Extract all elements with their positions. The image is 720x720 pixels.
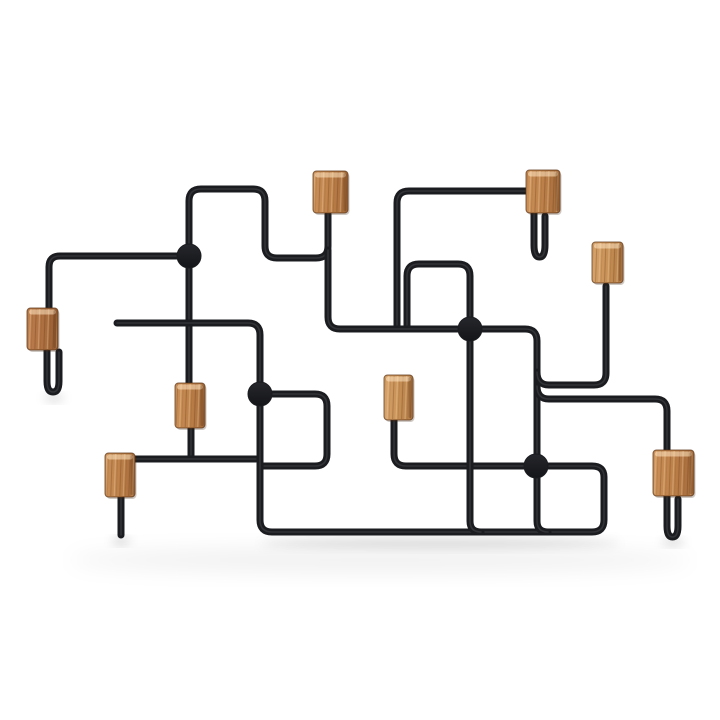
shadow-layer — [44, 395, 690, 572]
wood-block-center-top-highlight — [386, 377, 411, 382]
wood-block-center-grain — [385, 376, 412, 419]
wire-dotD-left-to-center-block-sheen — [394, 419, 536, 466]
wood-block-right-lower — [653, 450, 696, 498]
wood-block-left — [27, 308, 60, 352]
wood-block-right-upper-grain — [593, 243, 622, 282]
wood-block-mid-left-grain — [176, 384, 204, 427]
wood-block-right-lower-top-highlight — [655, 452, 692, 457]
wire-dotD-left-to-center-block — [394, 419, 536, 466]
product-photo-stage — [0, 0, 720, 720]
wire-tall-rect-to-topcenter-block — [397, 191, 528, 326]
wood-block-mid-left — [175, 383, 207, 430]
weld-dot-A — [177, 244, 201, 268]
wire-branch-up-to-rightupper-block-sheen — [537, 286, 606, 385]
wood-block-top-center — [526, 170, 562, 215]
wood-block-top-center-side-shade — [556, 172, 559, 211]
wood-block-mid-left-side-shade — [201, 385, 204, 426]
wire-branch-to-rightlower-block — [537, 386, 667, 453]
wire-dotB-down-corner — [470, 333, 481, 532]
wire-tall-rect-to-topcenter-block-sheen — [397, 191, 528, 326]
wood-block-top-left-top-highlight — [315, 173, 346, 178]
wood-block-right-lower-side-shade — [690, 452, 693, 494]
wood-block-top-center-top-highlight — [528, 172, 558, 177]
wood-block-right-upper-top-highlight — [594, 244, 621, 249]
wood-block-lower-left-side-shade — [131, 455, 134, 495]
wood-block-lower-left-top-highlight — [107, 455, 133, 460]
wood-peg-layer — [27, 170, 696, 499]
wood-block-top-left — [313, 171, 350, 215]
wood-block-top-center-grain — [527, 171, 559, 212]
wood-block-mid-left-top-highlight — [177, 385, 203, 390]
wood-block-right-upper-side-shade — [619, 244, 622, 281]
weld-dot-D — [524, 454, 548, 478]
wood-block-right-lower-grain — [654, 451, 693, 495]
weld-dot-layer — [177, 244, 548, 478]
wood-block-right-upper — [592, 242, 625, 285]
wire-branch-up-to-rightupper-block — [537, 286, 606, 385]
wood-block-left-top-highlight — [29, 310, 56, 315]
wood-block-top-left-side-shade — [344, 173, 347, 211]
wood-block-center — [384, 375, 415, 422]
wood-block-left-side-shade — [54, 310, 57, 348]
peg-spike-tip-shadow — [112, 538, 130, 544]
wood-block-lower-left-grain — [106, 454, 134, 496]
left-hook-tip-shadow — [44, 395, 64, 401]
wire-dotB-right-down-to-dotD — [474, 329, 537, 459]
wood-block-top-left-grain — [314, 172, 347, 212]
floor-haze — [70, 548, 690, 572]
wire-dotB-right-down-to-dotD-sheen — [474, 329, 537, 459]
rail-shadow — [260, 538, 620, 548]
wire-frame-layer — [47, 189, 678, 537]
wood-block-center-side-shade — [409, 377, 412, 418]
wood-block-lower-left — [105, 453, 137, 499]
weld-dot-B — [458, 317, 482, 341]
weld-dot-C — [248, 382, 272, 406]
wood-block-left-grain — [28, 309, 57, 349]
coat-rack-photo — [0, 0, 720, 720]
wire-dotC-zigzag-sheen — [260, 394, 327, 466]
wire-dotC-zigzag — [260, 394, 327, 466]
